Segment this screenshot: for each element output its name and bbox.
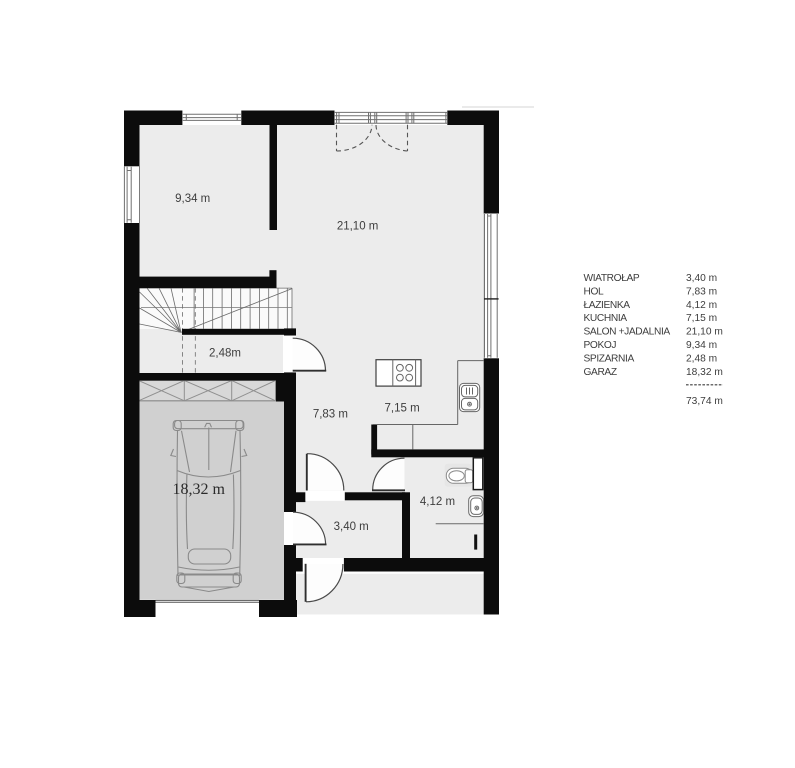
svg-text:4,12 m: 4,12 m (686, 300, 717, 311)
svg-text:18,32 m: 18,32 m (172, 481, 225, 498)
svg-text:SPIZARNIA: SPIZARNIA (584, 353, 635, 364)
svg-text:POKOJ: POKOJ (584, 340, 617, 351)
svg-text:3,40 m: 3,40 m (686, 273, 717, 284)
svg-text:21,10 m: 21,10 m (686, 327, 723, 338)
svg-text:KUCHNIA: KUCHNIA (584, 313, 628, 324)
svg-text:ŁAZIENKA: ŁAZIENKA (584, 300, 631, 311)
svg-text:9,34 m: 9,34 m (686, 340, 717, 351)
svg-text:9,34 m: 9,34 m (175, 193, 210, 205)
svg-text:2,48m: 2,48m (209, 348, 241, 360)
svg-text:18,32 m: 18,32 m (686, 367, 723, 378)
svg-text:21,10 m: 21,10 m (337, 220, 379, 232)
svg-text:HOL: HOL (584, 286, 605, 297)
svg-text:SALON +JADALNIA: SALON +JADALNIA (584, 327, 671, 338)
svg-text:2,48 m: 2,48 m (686, 353, 717, 364)
svg-text:73,74 m: 73,74 m (686, 396, 723, 407)
svg-text:7,83 m: 7,83 m (313, 408, 348, 420)
svg-text:7,83 m: 7,83 m (686, 286, 717, 297)
svg-text:3,40 m: 3,40 m (334, 521, 369, 533)
svg-text:GARAZ: GARAZ (584, 367, 617, 378)
svg-text:WIATROŁAP: WIATROŁAP (584, 273, 640, 284)
svg-text:4,12 m: 4,12 m (420, 496, 455, 508)
svg-text:7,15 m: 7,15 m (686, 313, 717, 324)
svg-text:7,15 m: 7,15 m (385, 402, 420, 414)
